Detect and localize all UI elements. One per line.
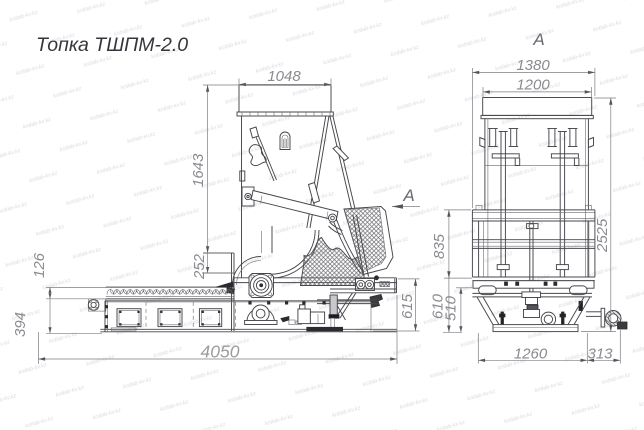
svg-text:Топка ТШПМ-2.0: Топка ТШПМ-2.0 (36, 34, 188, 56)
svg-text:510: 510 (442, 295, 459, 321)
svg-text:A: A (402, 186, 414, 205)
svg-text:1200: 1200 (516, 77, 550, 94)
svg-text:1048: 1048 (267, 68, 301, 85)
svg-text:126: 126 (31, 252, 48, 278)
svg-text:394: 394 (12, 312, 29, 337)
svg-text:A: A (532, 30, 544, 49)
svg-text:615: 615 (399, 293, 416, 319)
svg-text:1643: 1643 (190, 153, 207, 187)
svg-text:1380: 1380 (516, 57, 550, 74)
svg-text:313: 313 (587, 346, 613, 363)
svg-text:252: 252 (191, 253, 208, 280)
svg-text:2525: 2525 (594, 218, 611, 253)
svg-text:1260: 1260 (514, 346, 548, 363)
svg-text:4050: 4050 (201, 342, 240, 362)
svg-text:835: 835 (431, 233, 448, 259)
